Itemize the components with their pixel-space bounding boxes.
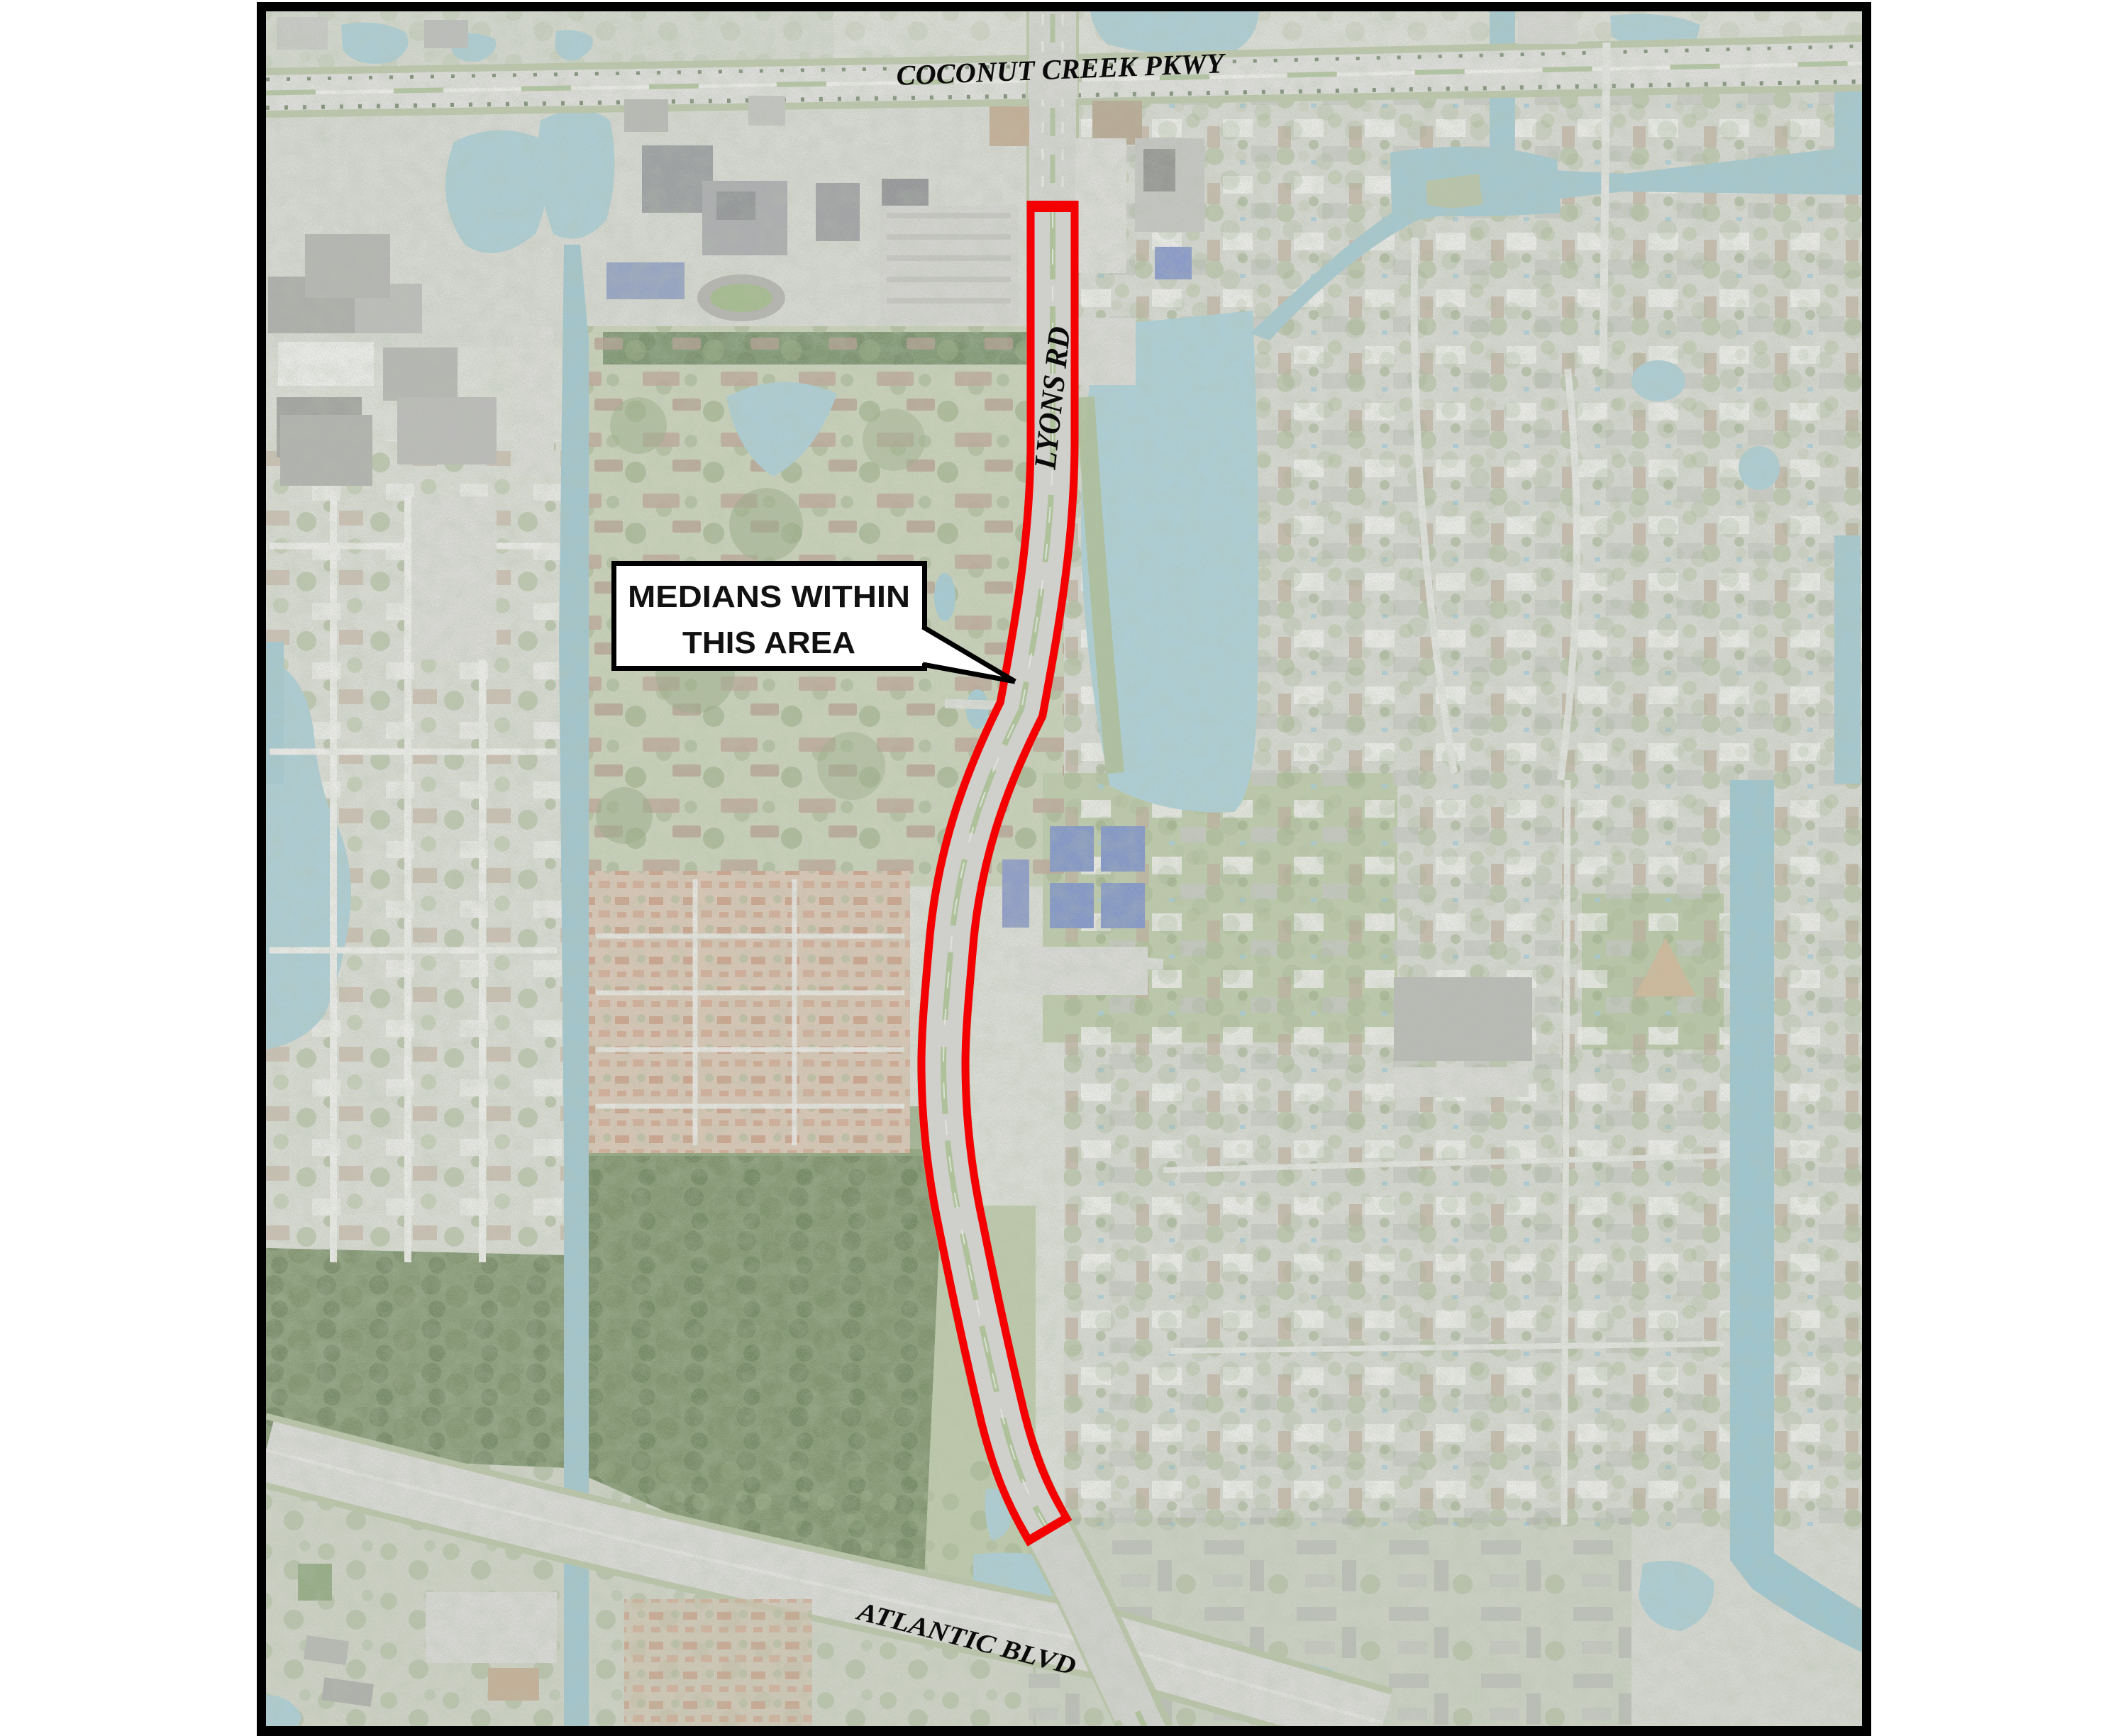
svg-text:MEDIANS WITHIN: MEDIANS WITHIN bbox=[628, 579, 910, 614]
svg-text:THIS AREA: THIS AREA bbox=[682, 625, 855, 660]
